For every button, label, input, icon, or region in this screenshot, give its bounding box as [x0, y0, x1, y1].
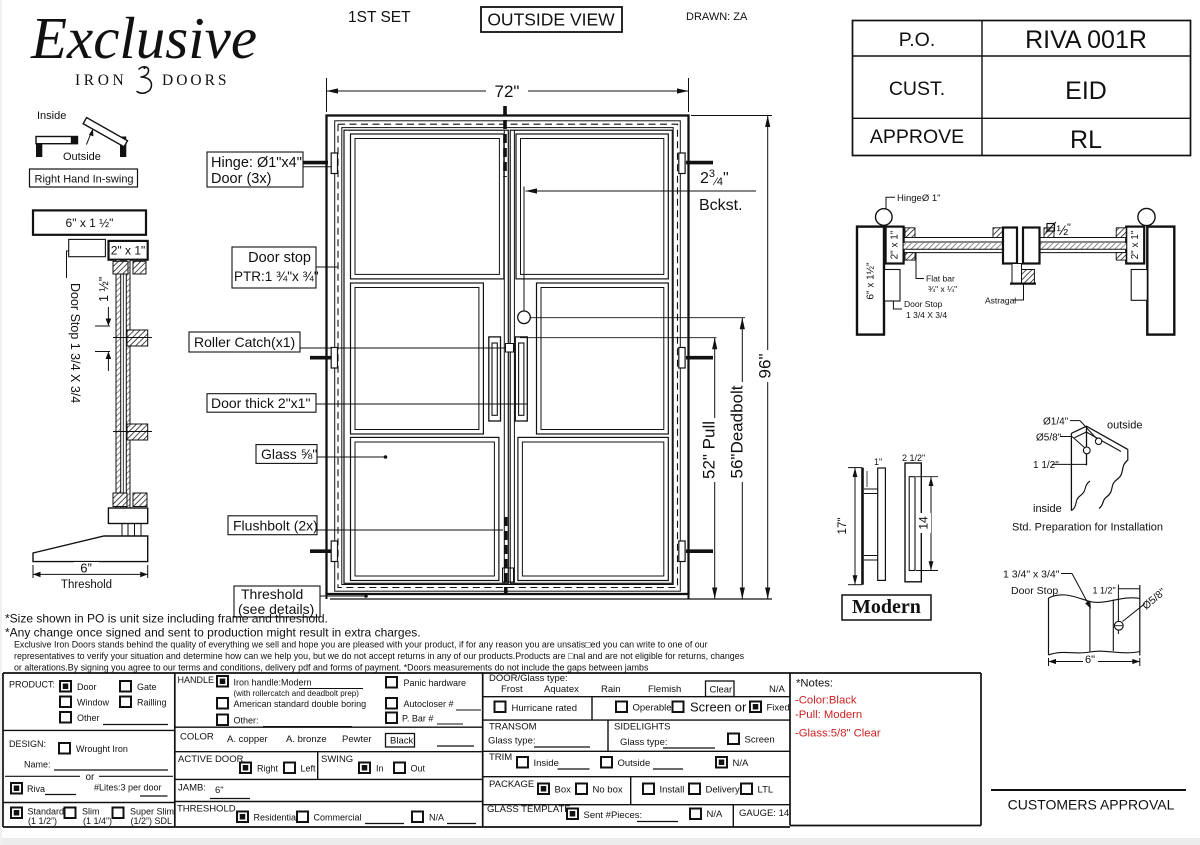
svg-text:Threshold: Threshold	[241, 586, 303, 602]
svg-text:Hurricane rated: Hurricane rated	[512, 703, 577, 714]
svg-text:DOOR/Glass type:: DOOR/Glass type:	[489, 673, 568, 684]
svg-text:Frost: Frost	[501, 684, 523, 695]
svg-text:THRESHOLD: THRESHOLD	[177, 804, 236, 815]
svg-text:-Color:Black: -Color:Black	[795, 695, 857, 707]
svg-text:Box: Box	[555, 785, 572, 796]
svg-text:RL: RL	[1070, 126, 1102, 154]
svg-text:1 3/4" x 3/4": 1 3/4" x 3/4"	[1003, 569, 1060, 581]
svg-text:Roller Catch(x1): Roller Catch(x1)	[194, 334, 295, 350]
svg-text:Flemish: Flemish	[648, 684, 681, 695]
svg-text:N/A: N/A	[769, 684, 786, 695]
svg-text:-Pull: Modern: -Pull: Modern	[795, 709, 862, 721]
svg-text:6": 6"	[1085, 654, 1095, 666]
svg-text:Astragal: Astragal	[985, 296, 1016, 306]
svg-text:inside: inside	[1033, 503, 1062, 515]
svg-text:Ø5/8": Ø5/8"	[1140, 586, 1168, 612]
svg-text:Bckst.: Bckst.	[699, 197, 743, 214]
svg-text:HingeØ 1": HingeØ 1"	[897, 193, 941, 204]
svg-text:Glass ⅝": Glass ⅝"	[261, 446, 317, 462]
svg-text:Ø5/8": Ø5/8"	[1036, 433, 1062, 444]
svg-text:Window: Window	[77, 698, 110, 708]
svg-text:2" x 1": 2" x 1"	[111, 244, 146, 258]
svg-text:Door Stop: Door Stop	[1011, 585, 1058, 597]
svg-text:Exclusive: Exclusive	[30, 5, 257, 71]
svg-text:Glass type:: Glass type:	[620, 737, 668, 748]
svg-text:or: or	[86, 772, 96, 783]
svg-text:Outside: Outside	[63, 151, 101, 163]
svg-text:-Glass:5/8" Clear: -Glass:5/8" Clear	[795, 728, 881, 740]
svg-text:Name:: Name:	[24, 760, 51, 770]
svg-text:DRAWN: ZA: DRAWN: ZA	[686, 11, 748, 23]
svg-text:P.O.: P.O.	[899, 29, 936, 51]
svg-text:Install: Install	[660, 785, 685, 796]
svg-text:PACKAGE: PACKAGE	[489, 779, 534, 790]
svg-text:*Notes:: *Notes:	[796, 678, 833, 690]
svg-text:2" x 1": 2" x 1"	[1130, 230, 1141, 259]
svg-text:Door Stop 1 3/4 X 3/4: Door Stop 1 3/4 X 3/4	[68, 283, 82, 403]
svg-text:6”: 6”	[80, 561, 92, 576]
svg-text:Threshold: Threshold	[61, 579, 112, 591]
svg-text:Riva: Riva	[27, 784, 45, 794]
svg-text:CUSTOMERS APPROVAL: CUSTOMERS APPROVAL	[1008, 797, 1175, 813]
svg-text:N/A: N/A	[429, 813, 444, 823]
svg-text:1ST SET: 1ST SET	[348, 9, 411, 26]
svg-text:American standard double borin: American standard double boring	[234, 699, 367, 709]
svg-text:ACTIVE DOOR: ACTIVE DOOR	[178, 754, 244, 765]
svg-text:TRIM: TRIM	[489, 752, 512, 763]
svg-text:DESIGN:: DESIGN:	[9, 739, 46, 749]
svg-text:Rain: Rain	[601, 684, 621, 695]
svg-text:Right: Right	[257, 764, 279, 774]
svg-text:GLASS TEMPLATE: GLASS TEMPLATE	[487, 804, 571, 815]
svg-text:Flushbolt (2x): Flushbolt (2x)	[233, 518, 318, 534]
svg-text:LTL: LTL	[758, 785, 774, 796]
svg-text:Aquatex: Aquatex	[544, 684, 579, 695]
svg-text:Black: Black	[390, 736, 413, 747]
svg-text:(1/2”) SDL: (1/2”) SDL	[131, 816, 173, 826]
svg-text:Std. Preparation for Installat: Std. Preparation for Installation	[1012, 522, 1163, 534]
svg-text:6" x 1½": 6" x 1½"	[866, 262, 877, 300]
svg-text:(with rollercatch and deadbolt: (with rollercatch and deadbolt prep)	[234, 689, 360, 698]
svg-text:Inside: Inside	[37, 110, 66, 122]
svg-text:Screen: Screen	[745, 735, 775, 746]
svg-text:17": 17"	[837, 518, 849, 535]
svg-text:72": 72"	[495, 82, 520, 101]
svg-text:96": 96"	[756, 354, 775, 379]
svg-text:": "	[1067, 222, 1071, 234]
svg-text:Modern: Modern	[852, 596, 921, 618]
svg-text:1 1/2": 1 1/2"	[1093, 586, 1116, 596]
svg-text:EID: EID	[1065, 77, 1107, 105]
svg-text:52" Pull: 52" Pull	[700, 421, 719, 479]
svg-text:Clear: Clear	[710, 685, 733, 696]
svg-text:GAUGE: 14: GAUGE: 14	[739, 808, 789, 819]
svg-text:OUTSIDE VIEW: OUTSIDE VIEW	[487, 10, 615, 30]
svg-text:1 1/2": 1 1/2"	[1033, 460, 1059, 471]
svg-text:CUST.: CUST.	[889, 78, 945, 100]
svg-text:Commercial: Commercial	[314, 813, 362, 823]
svg-text:Flat bar: Flat bar	[926, 274, 955, 284]
svg-text:Railling: Railling	[137, 698, 167, 708]
svg-text:Door thick 2"x1": Door thick 2"x1"	[211, 395, 310, 411]
svg-text:PRODUCT:: PRODUCT:	[9, 680, 55, 690]
svg-text:Sent #Pieces:: Sent #Pieces:	[584, 810, 643, 821]
svg-text:IRON: IRON	[75, 72, 127, 89]
svg-text:Out: Out	[411, 764, 426, 774]
svg-text:Door: Door	[77, 682, 97, 692]
svg-text:Pewter: Pewter	[342, 734, 372, 745]
svg-text:(1 1/4”): (1 1/4”)	[83, 816, 112, 826]
svg-text:TRANSOM: TRANSOM	[489, 722, 537, 733]
svg-text:Outside: Outside	[618, 758, 651, 769]
svg-text:¾" x ¼": ¾" x ¼"	[928, 284, 957, 294]
svg-text:Hinge: Ø1"x4": Hinge: Ø1"x4"	[211, 155, 302, 171]
svg-text:In: In	[376, 764, 384, 774]
svg-text:Residential: Residential	[254, 813, 299, 823]
svg-text:Exclusive Iron Doors stands be: Exclusive Iron Doors stands behind the q…	[14, 640, 708, 650]
svg-text:*Any change once signed and se: *Any change once signed and sent to prod…	[5, 625, 421, 639]
svg-text:JAMB:: JAMB:	[178, 783, 206, 794]
svg-text:Right Hand In-swing: Right Hand In-swing	[35, 174, 134, 186]
svg-text:N/A: N/A	[733, 758, 750, 769]
svg-text:Gate: Gate	[137, 682, 157, 692]
svg-text:Other: Other	[77, 713, 100, 723]
svg-text:Glass type:: Glass type:	[488, 736, 536, 747]
svg-text:14: 14	[917, 516, 931, 530]
svg-text:No box: No box	[593, 785, 623, 796]
svg-text:6": 6"	[215, 785, 224, 796]
svg-text:DOORS: DOORS	[162, 72, 230, 89]
svg-text:RIVA 001R: RIVA 001R	[1025, 26, 1147, 54]
svg-text:#Lites:3 per door: #Lites:3 per door	[94, 783, 162, 793]
svg-text:Door Stop: Door Stop	[904, 299, 943, 309]
svg-text:P. Bar #: P. Bar #	[402, 714, 433, 724]
svg-text:Other:: Other:	[234, 716, 259, 726]
svg-text:Delivery: Delivery	[706, 785, 741, 796]
svg-text:A. copper: A. copper	[227, 734, 268, 745]
svg-text:Panic hardware: Panic hardware	[404, 678, 467, 688]
svg-text:23⁄4": 23⁄4"	[700, 168, 729, 188]
svg-text:COLOR: COLOR	[180, 732, 214, 743]
svg-text:SIDELIGHTS: SIDELIGHTS	[614, 722, 671, 733]
svg-text:1 ½": 1 ½"	[97, 277, 111, 302]
svg-text:or alterations.By signing you: or alterations.By signing you agree to o…	[14, 662, 649, 672]
svg-text:1": 1"	[874, 457, 882, 467]
svg-text:outside: outside	[1107, 420, 1142, 432]
svg-text:N/A: N/A	[707, 809, 724, 820]
svg-text:Operable: Operable	[633, 703, 672, 714]
svg-text:PTR:1 ¾"x ¾": PTR:1 ¾"x ¾"	[234, 269, 319, 284]
svg-text:(1 1/2”): (1 1/2”)	[28, 816, 57, 826]
svg-text:Left: Left	[301, 764, 317, 774]
svg-text:Door stop: Door stop	[248, 250, 311, 266]
svg-text:Fixed: Fixed	[767, 703, 790, 714]
svg-text:1 3/4 X 3/4: 1 3/4 X 3/4	[906, 310, 947, 320]
svg-text:Autocloser #: Autocloser #	[404, 699, 454, 709]
svg-text:A. bronze: A. bronze	[286, 734, 327, 745]
svg-text:Wrought Iron: Wrought Iron	[76, 744, 128, 754]
svg-text:Screen or: Screen or	[690, 700, 747, 715]
svg-text:*Size shown in PO is unit size: *Size shown in PO is unit size including…	[5, 612, 328, 626]
svg-text:Iron handle:Modern: Iron handle:Modern	[234, 678, 312, 688]
svg-text:2" x 1": 2" x 1"	[890, 230, 901, 259]
svg-text:Door (3x): Door (3x)	[211, 171, 271, 187]
svg-text:2 1/2": 2 1/2"	[902, 453, 925, 463]
svg-text:Inside: Inside	[534, 758, 559, 769]
svg-text:6" x 1 ½": 6" x 1 ½"	[66, 216, 114, 230]
svg-text:HANDLE: HANDLE	[178, 675, 215, 685]
svg-text:Ø1/4": Ø1/4"	[1043, 417, 1069, 428]
svg-text:APPROVE: APPROVE	[870, 126, 964, 148]
svg-text:SWING: SWING	[321, 754, 353, 765]
svg-text:representatives to verify your: representatives to verify your situation…	[14, 651, 745, 661]
svg-text:56"Deadbolt: 56"Deadbolt	[728, 385, 747, 478]
